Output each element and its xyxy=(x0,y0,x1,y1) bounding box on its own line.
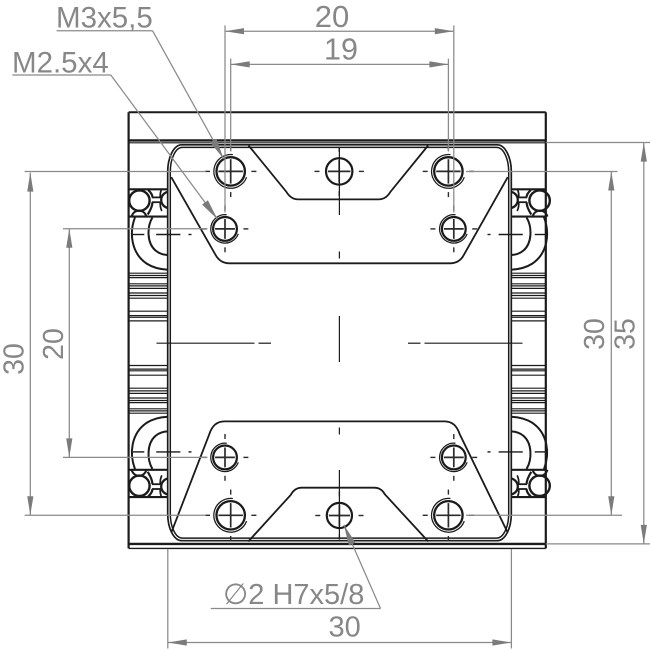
svg-text:20: 20 xyxy=(38,328,70,360)
svg-text:M2.5x4: M2.5x4 xyxy=(12,47,109,80)
svg-text:30: 30 xyxy=(579,318,611,350)
svg-text:M3x5,5: M3x5,5 xyxy=(56,1,153,34)
svg-text:19: 19 xyxy=(324,32,358,66)
svg-text:30: 30 xyxy=(328,612,360,644)
svg-text:30: 30 xyxy=(0,343,30,375)
svg-text:20: 20 xyxy=(315,0,349,34)
svg-text:35: 35 xyxy=(609,318,641,350)
svg-text:∅2 H7x5/8: ∅2 H7x5/8 xyxy=(223,579,364,611)
